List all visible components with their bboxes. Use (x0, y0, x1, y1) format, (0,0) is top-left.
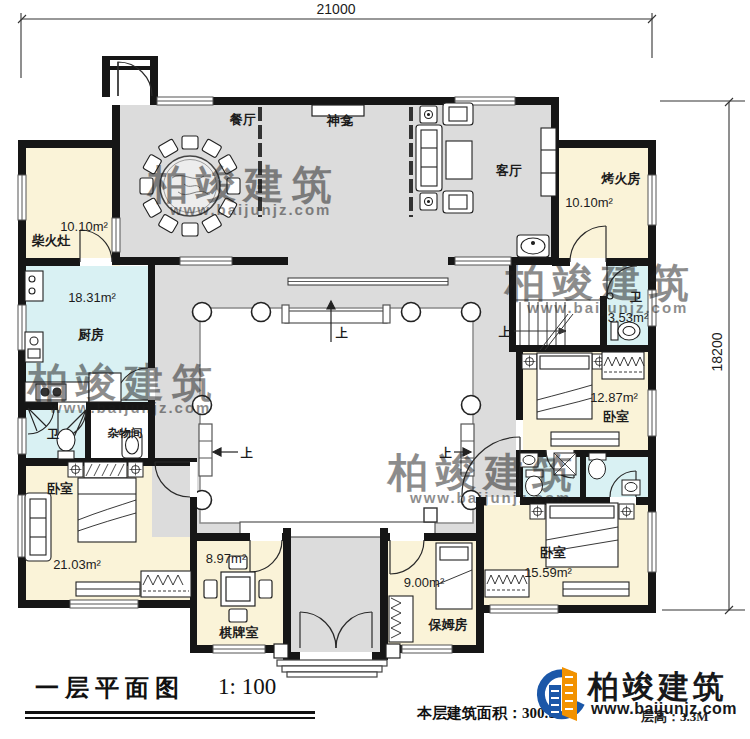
area-kitchen: 18.31m² (68, 290, 116, 305)
label-nanny: 保姆房 (428, 617, 468, 632)
watermark-4: 柏竣建筑 www.baijunjz.com (386, 450, 580, 506)
label-bedroom-br: 卧室 (540, 545, 566, 560)
up-label-top: 上 (335, 326, 348, 340)
watermark-site: www.baijunjz.com (169, 201, 331, 218)
label-shrine: 神龛 (326, 113, 353, 128)
label-bedroom-left: 卧室 (47, 481, 73, 496)
area-chess: 8.97m² (206, 551, 247, 566)
dimension-right-value: 18200 (709, 332, 725, 371)
watermark-brand: 柏竣建筑 (503, 260, 697, 304)
area-bath-stairs: 3.53m² (608, 310, 649, 325)
watermark-brand: 柏竣建筑 (146, 162, 340, 206)
area-firewood: 10.10m² (60, 219, 108, 234)
label-chess: 棋牌室 (219, 625, 259, 640)
area-bedroom-br: 15.59m² (524, 565, 572, 580)
plan-scale: 1: 100 (218, 674, 276, 700)
up-label-stairs: 上 (498, 325, 511, 339)
label-bath-left: 卫 (47, 427, 59, 441)
up-label-left: 上 (240, 446, 253, 460)
watermark-brand: 柏竣建筑 (386, 450, 580, 494)
watermark-site: www.baijunjz.com (49, 399, 211, 416)
company-logo-site: www.baijunjz.com (591, 700, 737, 718)
company-logo-icon (534, 663, 586, 731)
dimension-top-value: 21000 (317, 1, 356, 17)
area-bedroom-left: 21.03m² (53, 557, 101, 572)
label-bedroom-mr: 卧室 (603, 409, 629, 424)
floor-plan-svg: 柏竣建筑 www.baijunjz.com 柏竣建筑 www.baijunjz.… (0, 0, 750, 739)
plan-title: 一层平面图 (35, 672, 185, 704)
title-underline-2 (25, 717, 315, 719)
watermark-site: www.baijunjz.com (409, 489, 571, 506)
dimension-right: 18200 (660, 98, 745, 614)
watermark-2: 柏竣建筑 www.baijunjz.com (503, 260, 697, 316)
label-storage: 杂物间 (107, 427, 143, 439)
area-fire-room: 10.10m² (565, 195, 613, 210)
label-firewood: 柴火灶 (32, 233, 71, 248)
label-kitchen: 厨房 (77, 327, 104, 342)
area-bedroom-mr: 12.87m² (590, 390, 638, 405)
label-living: 客厅 (495, 163, 522, 178)
title-underline (25, 711, 315, 714)
label-dining: 餐厅 (229, 112, 256, 127)
label-bath-stairs: 卫 (630, 290, 642, 304)
watermark-1: 柏竣建筑 www.baijunjz.com (146, 162, 340, 218)
floor-plan-page: 柏竣建筑 www.baijunjz.com 柏竣建筑 www.baijunjz.… (0, 0, 750, 739)
up-label-right: 上 (439, 446, 452, 460)
watermark-3: 柏竣建筑 www.baijunjz.com (26, 360, 220, 416)
label-fire-room: 烤火房 (601, 171, 641, 186)
watermark-brand: 柏竣建筑 (26, 360, 220, 404)
area-nanny: 9.00m² (404, 575, 445, 590)
